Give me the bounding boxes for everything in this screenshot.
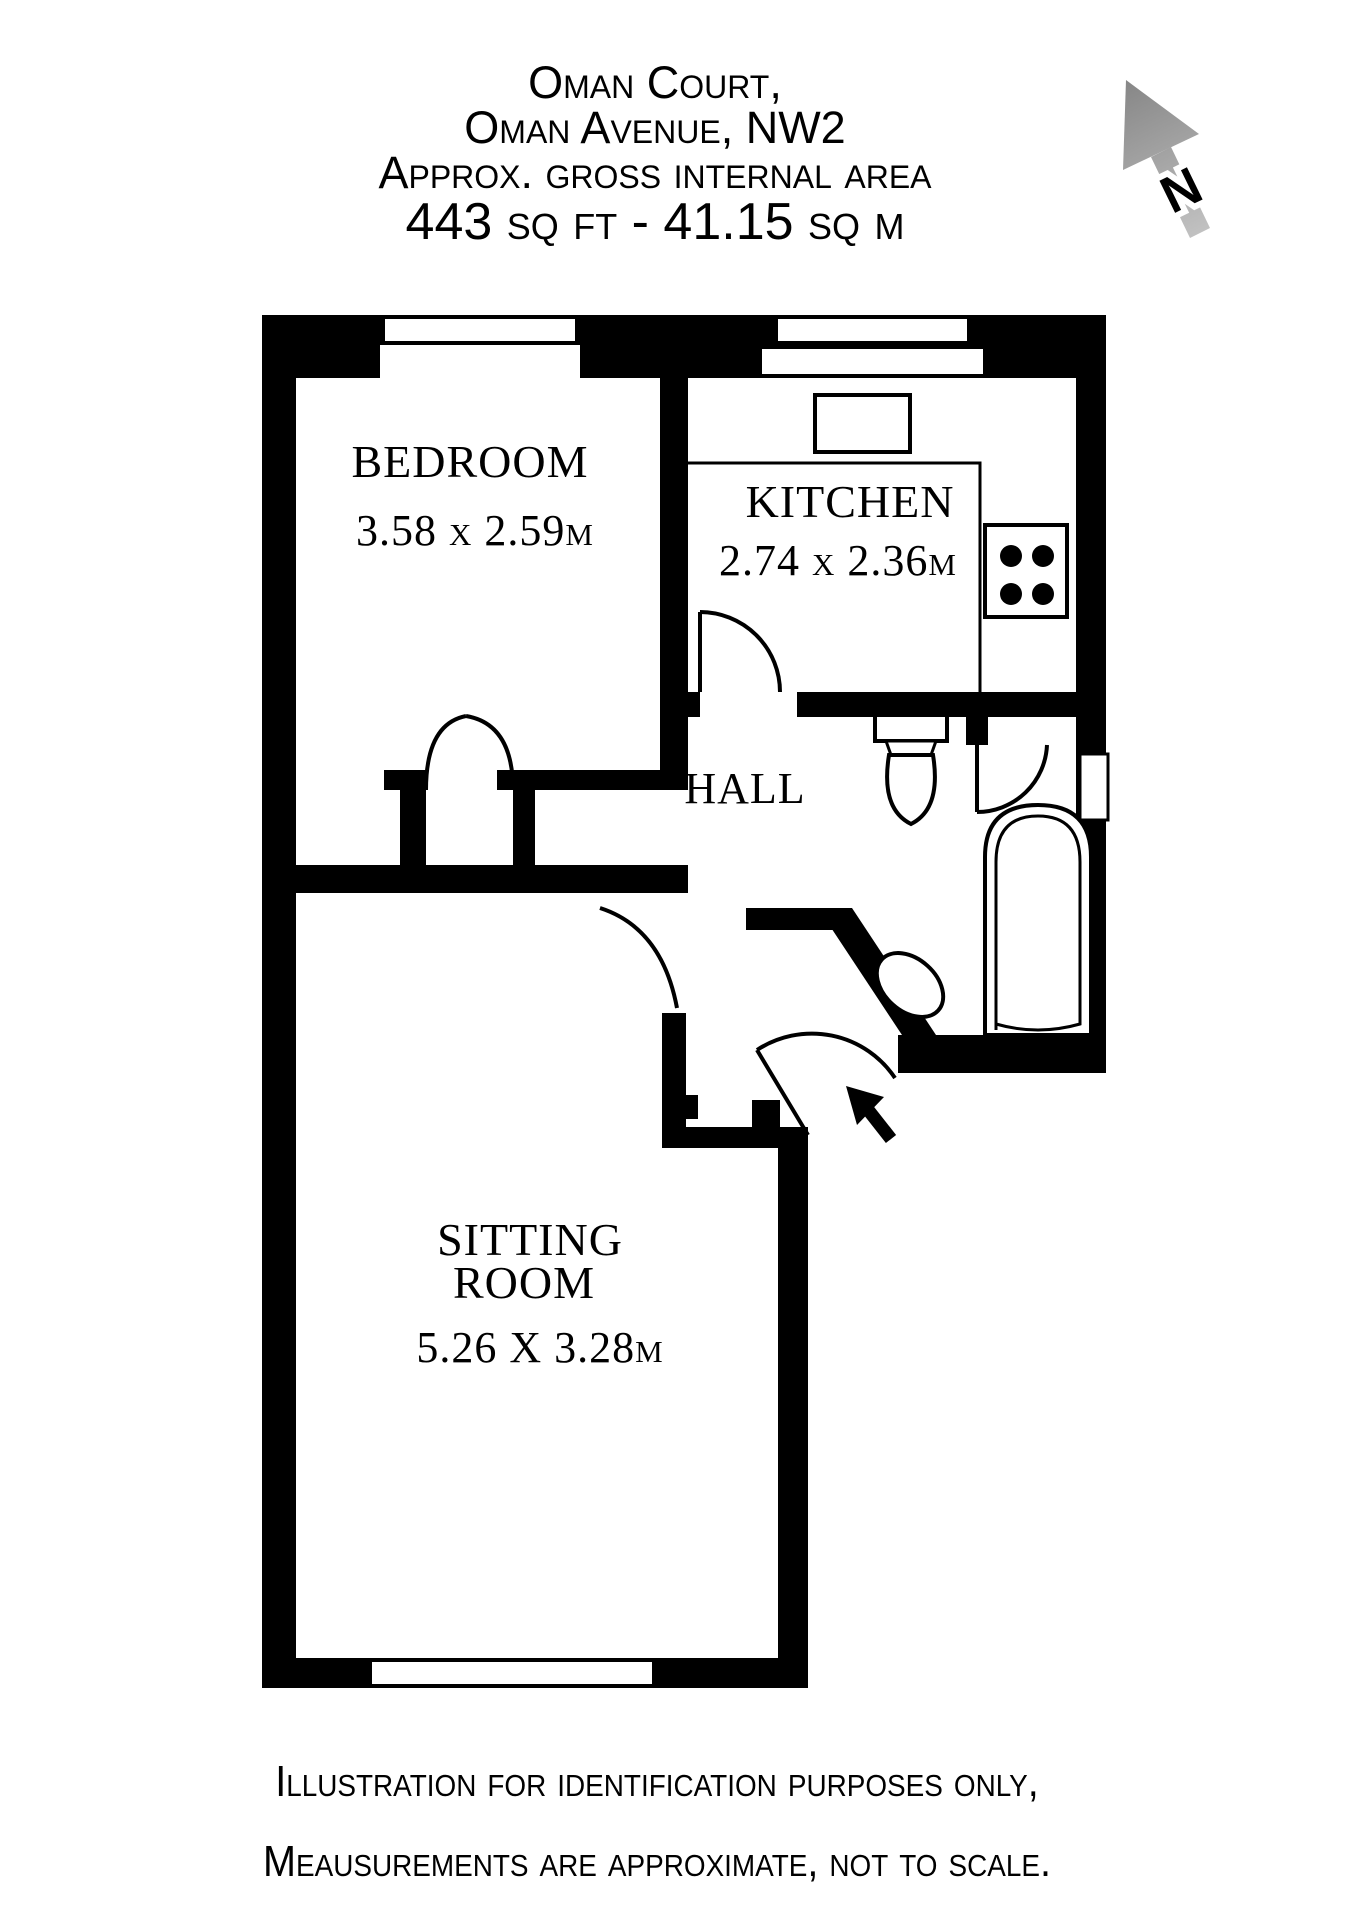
kitchen-sink-icon	[815, 395, 910, 452]
wall-sitting-room-top	[296, 865, 688, 893]
wall-sitting-room-right	[778, 1148, 808, 1688]
sitting-room-dimensions: 5.26 X 3.28m	[416, 1323, 663, 1372]
disclaimer-line-1: Illustration for identification purposes…	[46, 1742, 1268, 1822]
bedroom-label: BEDROOM	[351, 436, 588, 487]
kitchen-window-outer-icon	[778, 319, 967, 341]
sitting-room-door-icon	[600, 908, 677, 1008]
stove-burner	[1000, 545, 1022, 567]
bathroom-window-icon	[1080, 754, 1108, 820]
toilet-icon	[875, 715, 947, 824]
wall-bedroom-kitchen-divider	[660, 378, 688, 790]
kitchen-door-opening	[700, 692, 797, 717]
bedroom-window-icon	[385, 319, 575, 341]
stove-outline	[985, 525, 1067, 617]
toilet-cistern	[875, 715, 947, 741]
bathroom-door-icon	[977, 745, 1047, 812]
wall-entry-stub	[662, 1127, 808, 1148]
kitchen-label: KITCHEN	[746, 476, 955, 527]
wall-doorstop-tick-1	[686, 1095, 698, 1119]
kitchen-dimensions: 2.74 x 2.36m	[719, 536, 957, 585]
floorplan-drawing: N BEDROOM 3.58 x 2.59m KITCHEN 2.74 x 2.…	[0, 0, 1358, 1920]
kitchen-window-inner-icon	[762, 349, 983, 374]
stove-burner	[1000, 583, 1022, 605]
wall-bathroom-door-stub	[966, 717, 988, 745]
entry-arrow-icon	[846, 1086, 891, 1139]
kitchen-door-icon	[700, 612, 780, 692]
wall-doorstop-tick-2	[752, 1100, 780, 1127]
stove-burner	[1032, 545, 1054, 567]
wall-hall-north	[535, 770, 688, 790]
entry-arrow-shaft	[869, 1111, 891, 1139]
disclaimer: Illustration for identification purposes…	[46, 1742, 1268, 1902]
stove-icon	[985, 525, 1067, 617]
wall-left	[262, 315, 296, 1688]
sitting-room-label-line2: ROOM	[453, 1257, 595, 1308]
bathtub-icon	[985, 805, 1091, 1035]
hall-label: HALL	[684, 764, 805, 813]
stove-burner	[1032, 583, 1054, 605]
bedroom-dimensions: 3.58 x 2.59m	[356, 506, 594, 555]
wall-jamb-left-tick	[384, 770, 400, 790]
wall-bathroom-bottom	[898, 1035, 1106, 1073]
toilet-bowl	[887, 755, 935, 824]
disclaimer-line-2: Meausurements are approximate, not to sc…	[46, 1822, 1268, 1902]
floorplan-page: Oman Court, Oman Avenue, NW2 Approx. gro…	[0, 0, 1358, 1920]
sitting-room-window-icon	[372, 1662, 652, 1684]
toilet-seat	[886, 741, 936, 755]
room-labels: BEDROOM 3.58 x 2.59m KITCHEN 2.74 x 2.36…	[351, 436, 956, 1372]
north-arrow-icon: N	[1123, 80, 1211, 238]
